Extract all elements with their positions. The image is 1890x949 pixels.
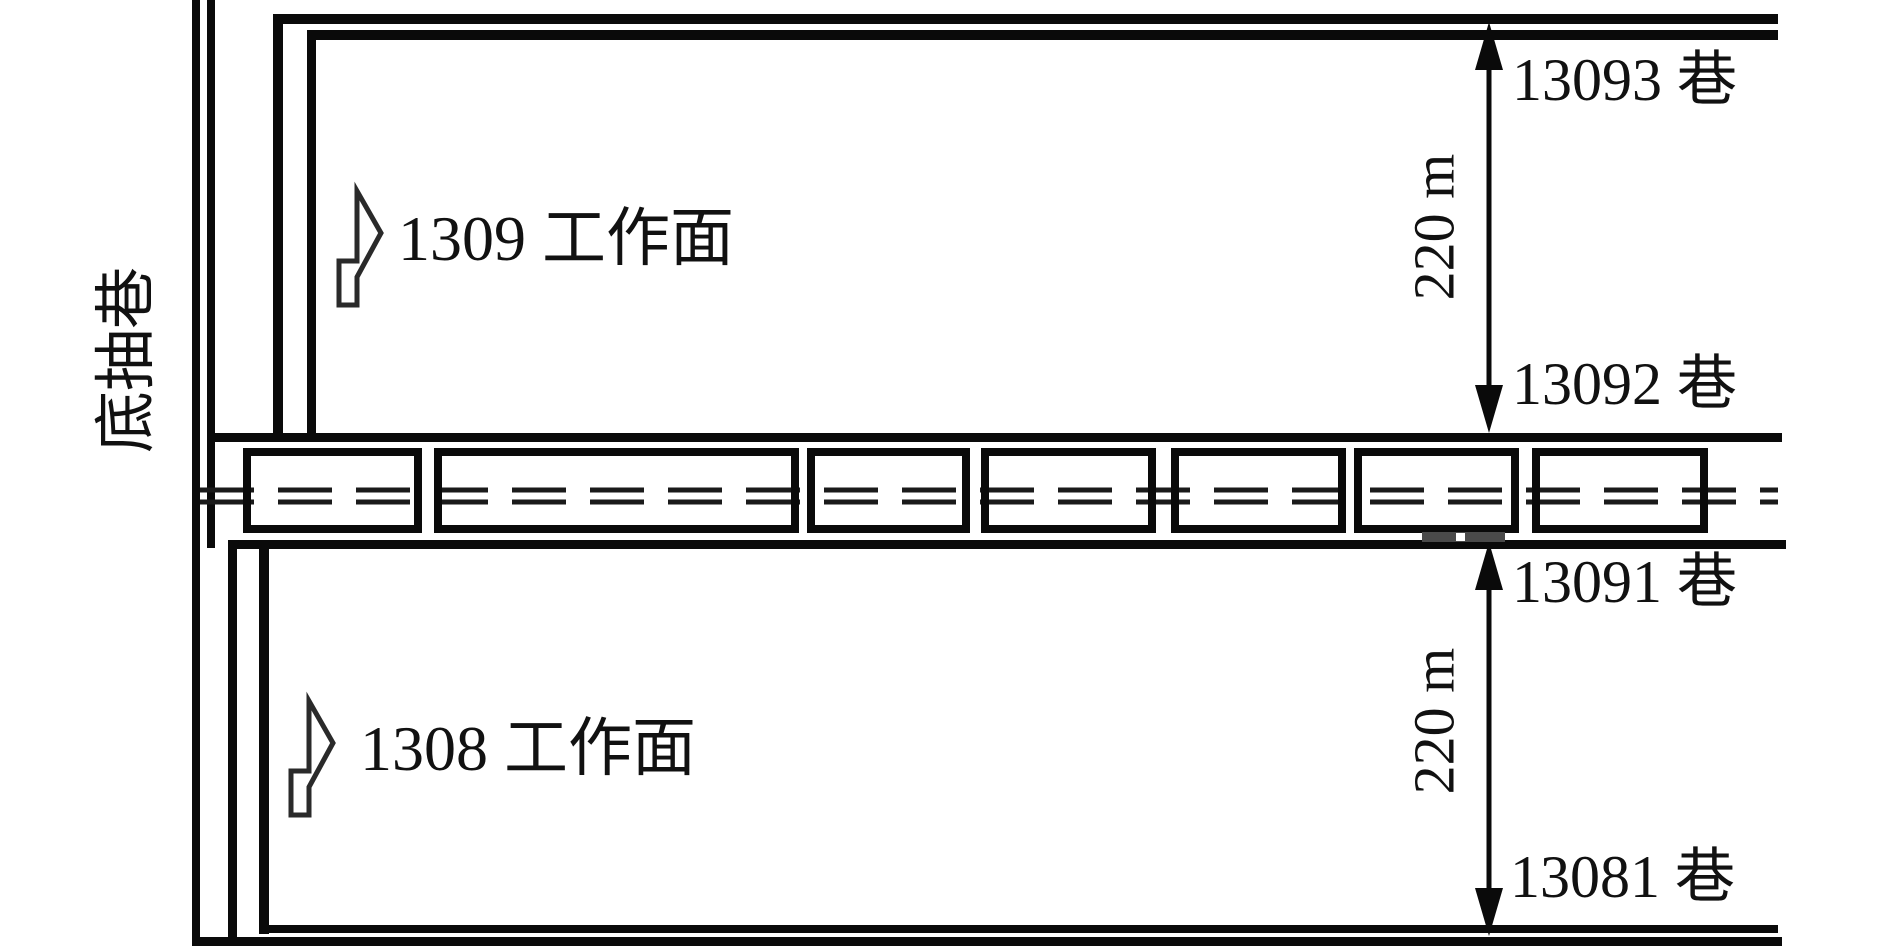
roadway-13092-label: 13092 巷 (1512, 351, 1737, 417)
dimension-upper-label: 220 m (1401, 154, 1466, 301)
face-advance-arrow-1308 (291, 701, 333, 815)
panel-1309-inner-left-wall (307, 30, 316, 440)
roadway-13093-outer-line (273, 14, 1778, 24)
mine-layout-diagram: 底抽巷 1309 工作面 1308 工作面 13093 巷 13092 巷 13… (0, 0, 1890, 949)
dimension-lower-arrow-up (1475, 542, 1503, 590)
panel-1308-label: 1308 工作面 (360, 713, 696, 784)
diagram-canvas: 底抽巷 1309 工作面 1308 工作面 13093 巷 13092 巷 13… (0, 0, 1890, 949)
panel-1308-left-wall (259, 540, 269, 934)
dimension-upper-arrow-up (1475, 22, 1503, 70)
dimension-upper-arrow-down (1475, 385, 1503, 433)
panel-1309-outer-left-wall (273, 14, 283, 442)
roadway-13093-inner-line (307, 30, 1778, 40)
roadway-13091-label: 13091 巷 (1512, 549, 1737, 615)
roadway-13093-label: 13093 巷 (1512, 47, 1737, 113)
drainage-roadway-label: 底抽巷 (93, 267, 161, 453)
roadway-13081-line (192, 937, 1782, 946)
face-advance-arrow-1309 (339, 191, 381, 305)
dimension-lower-label: 220 m (1401, 648, 1466, 795)
drainage-roadway-left-wall (192, 0, 200, 946)
panel-1308-bottom-line (259, 925, 1778, 933)
roadway-13092-line (207, 433, 1782, 442)
roadway-13081-label: 13081 巷 (1510, 844, 1735, 910)
roadway-13091-line (228, 540, 1786, 549)
panel-1309-label: 1309 工作面 (398, 203, 734, 274)
drainage-roadway-right-wall-lower (228, 540, 237, 938)
drainage-roadway-right-wall-upper (207, 0, 215, 548)
equipment-bar-notch (1456, 533, 1465, 541)
